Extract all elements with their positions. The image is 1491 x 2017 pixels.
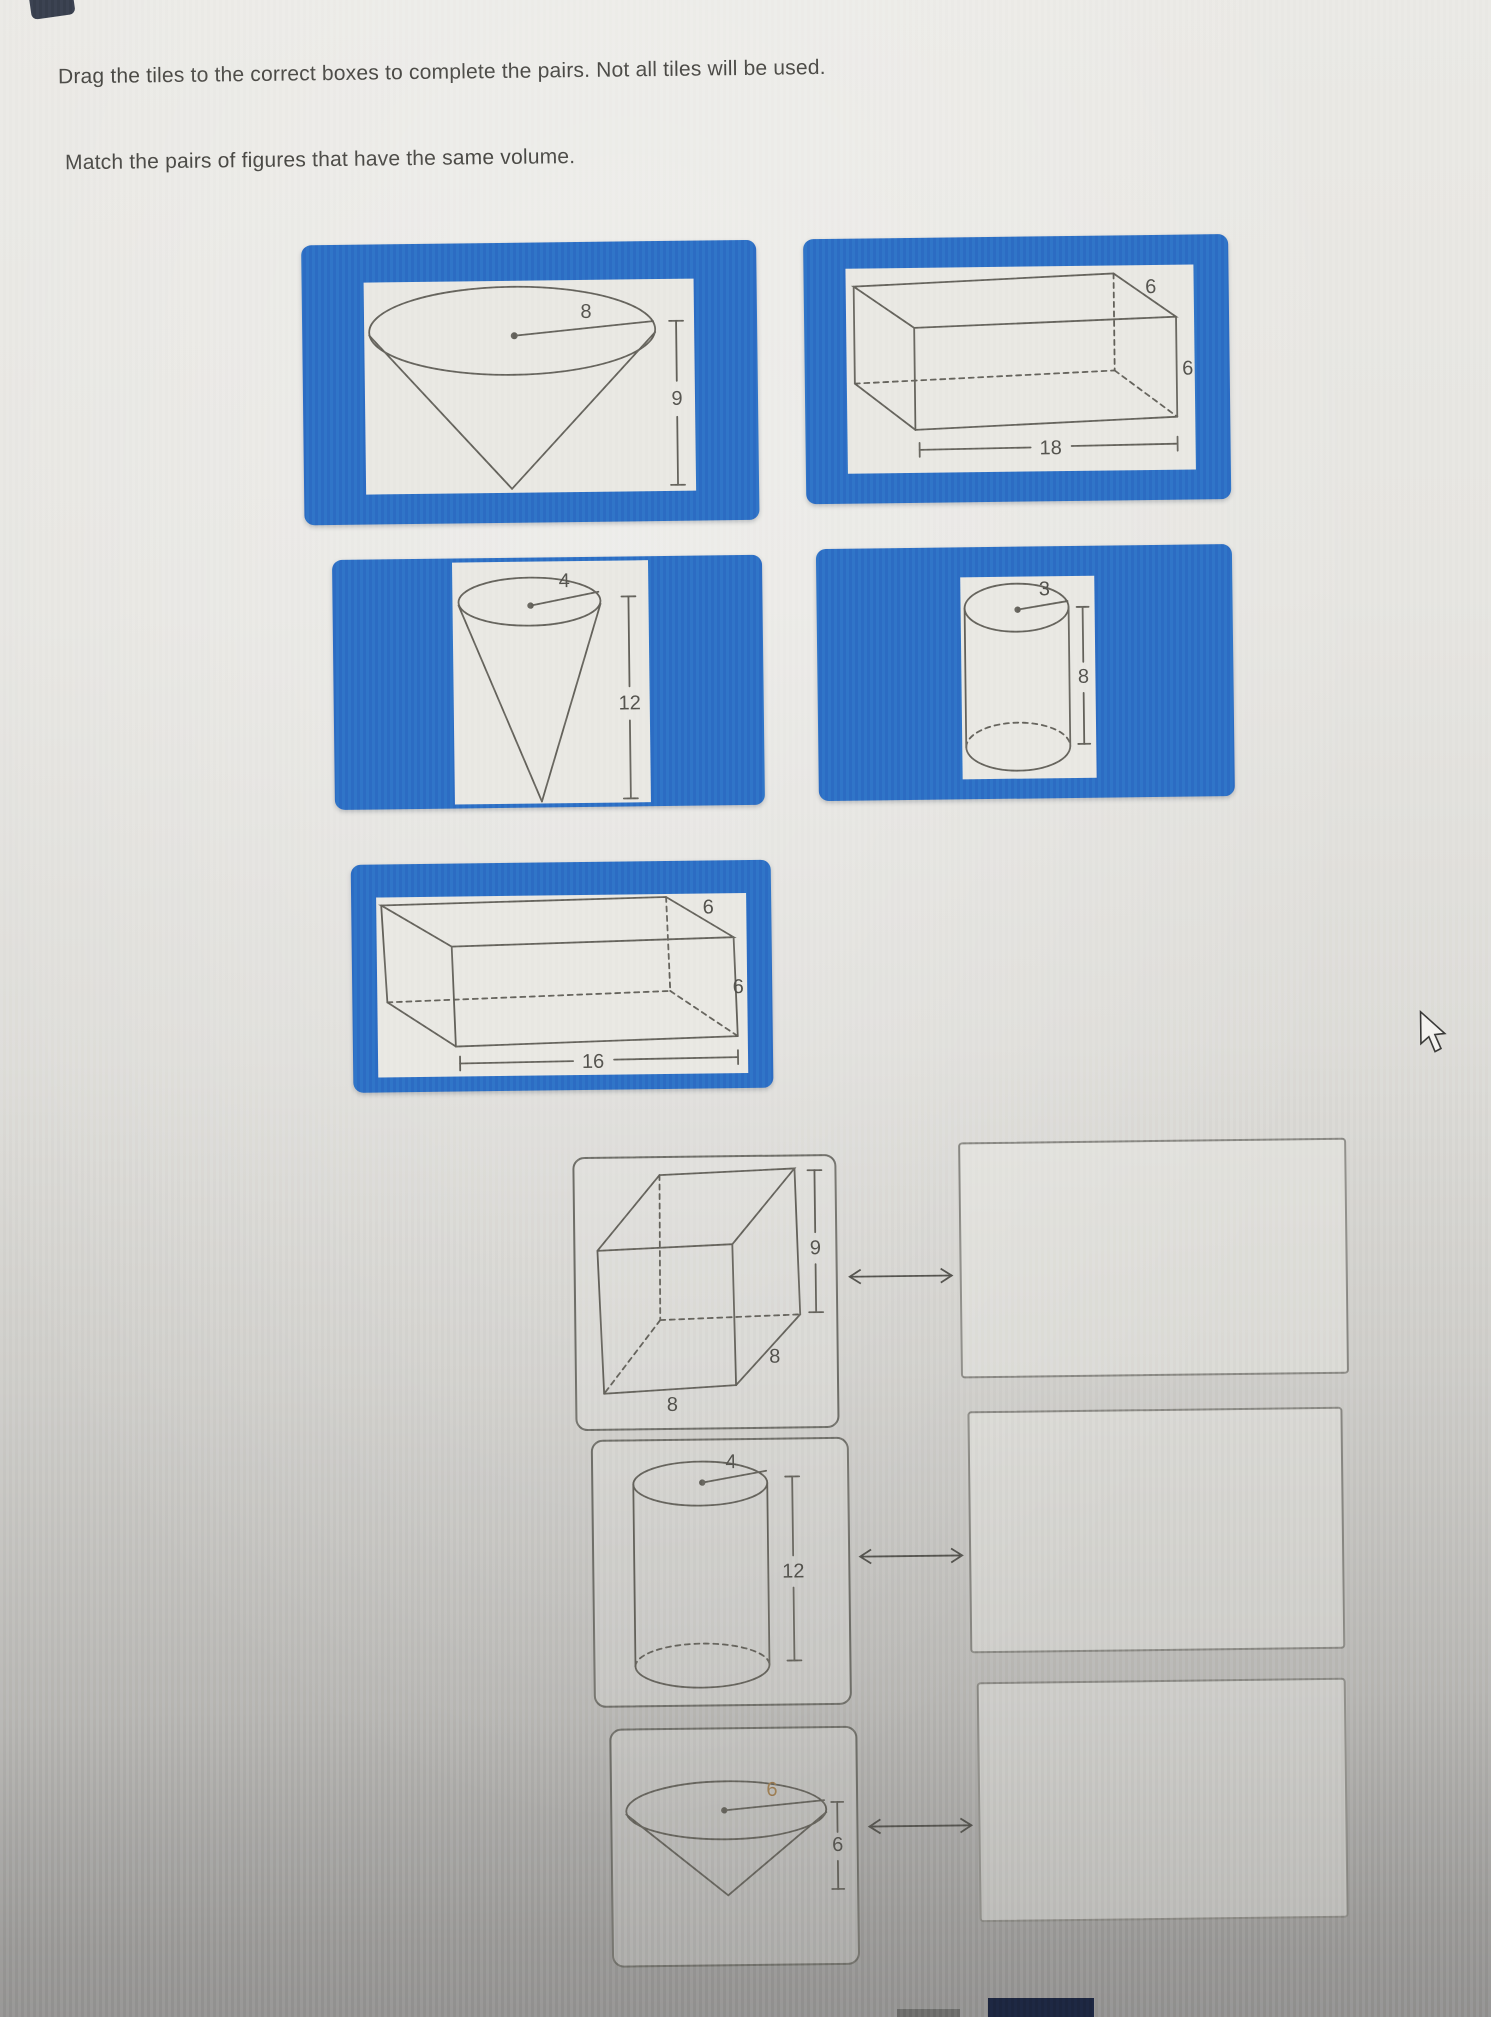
width-label: 8 xyxy=(667,1394,678,1416)
cone-base-ellipse xyxy=(369,285,656,376)
tile-prism-16-6-6[interactable]: 6 6 16 xyxy=(351,860,774,1093)
height-dim-line xyxy=(814,1170,815,1232)
prism-top-face xyxy=(854,273,1177,329)
height-dim-line xyxy=(1083,607,1084,662)
tile-prism-18-6-6[interactable]: 6 6 18 xyxy=(803,234,1231,504)
tile-prism-16-panel: 6 6 16 xyxy=(376,893,748,1078)
drop-target-2[interactable] xyxy=(967,1407,1345,1654)
height-label: 9 xyxy=(810,1237,821,1259)
cone-figure: 6 6 xyxy=(611,1728,858,1966)
hidden-edge xyxy=(1115,370,1178,418)
height-dim-line xyxy=(628,596,629,686)
tile-cylinder-3-8[interactable]: 3 8 xyxy=(816,544,1235,801)
drop-target-3[interactable] xyxy=(977,1678,1349,1922)
tile-cone-8-9-panel: 8 9 xyxy=(364,279,697,495)
cone-figure: 8 9 xyxy=(364,279,697,495)
cylinder-figure: 4 12 xyxy=(593,1439,850,1706)
bottom-ui-fragment xyxy=(988,1998,1094,2017)
tile-cylinder-panel: 3 8 xyxy=(960,576,1096,780)
prism-top-face xyxy=(381,896,734,947)
left-right-arrow-icon xyxy=(841,1263,961,1288)
exercise-area: Drag the tiles to the correct boxes to c… xyxy=(0,0,1491,2017)
mouse-cursor-icon xyxy=(1418,1009,1455,1055)
instruction-line-1: Drag the tiles to the correct boxes to c… xyxy=(58,56,826,89)
height-dim-line xyxy=(676,321,677,381)
drop-target-1[interactable] xyxy=(958,1138,1349,1379)
cone-side-right xyxy=(727,1812,827,1895)
cone-side-left xyxy=(626,1813,728,1896)
radius-line xyxy=(724,1800,824,1810)
instruction-line-2: Match the pairs of figures that have the… xyxy=(65,145,575,175)
hidden-edge xyxy=(666,897,670,991)
cylinder-bottom-hidden xyxy=(635,1643,769,1667)
height-label: 6 xyxy=(733,976,744,998)
height-dim-line xyxy=(792,1476,793,1555)
cone-figure: 4 12 xyxy=(452,560,651,804)
height-label: 9 xyxy=(671,388,682,410)
depth-label: 6 xyxy=(703,896,714,918)
length-label: 18 xyxy=(1039,437,1062,459)
cylinder-bottom-hidden xyxy=(966,722,1070,747)
radius-line xyxy=(530,592,598,606)
depth-label: 8 xyxy=(769,1346,780,1368)
tile-cone-4-12-panel: 4 12 xyxy=(452,560,651,804)
cone-side-left xyxy=(459,605,542,803)
prism-figure: 6 6 16 xyxy=(376,893,748,1078)
prism-top-face xyxy=(596,1168,795,1250)
prism-figure: 6 6 18 xyxy=(845,264,1195,473)
radius-line xyxy=(514,321,653,336)
tile-cone-4-12[interactable]: 4 12 xyxy=(332,555,765,810)
height-label: 12 xyxy=(782,1560,805,1582)
radius-label: 4 xyxy=(725,1451,736,1473)
cylinder-bottom-front xyxy=(635,1665,769,1689)
depth-label: 6 xyxy=(1145,276,1156,298)
height-label: 6 xyxy=(832,1834,843,1856)
height-label: 8 xyxy=(1078,666,1089,688)
cylinder-bottom-front xyxy=(966,746,1070,771)
match-figure-cylinder-4-12: 4 12 xyxy=(591,1437,852,1708)
length-label: 16 xyxy=(582,1051,605,1073)
radius-label: 3 xyxy=(1039,578,1050,600)
cylinder-figure: 3 8 xyxy=(960,576,1096,780)
cone-side-right xyxy=(540,604,603,802)
height-label: 6 xyxy=(1182,357,1193,379)
hidden-edge xyxy=(603,1320,661,1394)
height-label: 12 xyxy=(618,692,641,714)
hidden-edge xyxy=(387,991,670,1002)
tile-prism-18-panel: 6 6 18 xyxy=(845,264,1195,473)
radius-label: 4 xyxy=(559,570,570,592)
match-figure-cone-6-6: 6 6 xyxy=(609,1726,860,1968)
screen: Drag the tiles to the correct boxes to c… xyxy=(0,0,1491,2017)
left-right-arrow-icon xyxy=(851,1543,971,1568)
left-right-arrow-icon xyxy=(860,1813,980,1838)
hidden-edge xyxy=(855,370,1115,383)
hidden-edge xyxy=(670,990,738,1037)
hidden-edge xyxy=(1114,273,1115,370)
hidden-edge xyxy=(660,1314,800,1320)
match-figure-prism-8-8-9: 9 8 8 xyxy=(572,1154,839,1431)
length-dim-line xyxy=(920,447,1031,449)
tile-cone-8-9[interactable]: 8 9 xyxy=(301,240,759,526)
cone-side-right xyxy=(510,332,657,489)
cone-base-ellipse xyxy=(458,577,601,627)
radius-label: 8 xyxy=(580,301,591,323)
radius-line xyxy=(1018,601,1068,610)
length-dim-line xyxy=(460,1061,573,1063)
radius-label: 6 xyxy=(766,1779,777,1801)
cube-figure: 9 8 8 xyxy=(574,1156,837,1429)
cone-side-left xyxy=(369,334,512,491)
bottom-ui-fragment xyxy=(897,2009,960,2017)
